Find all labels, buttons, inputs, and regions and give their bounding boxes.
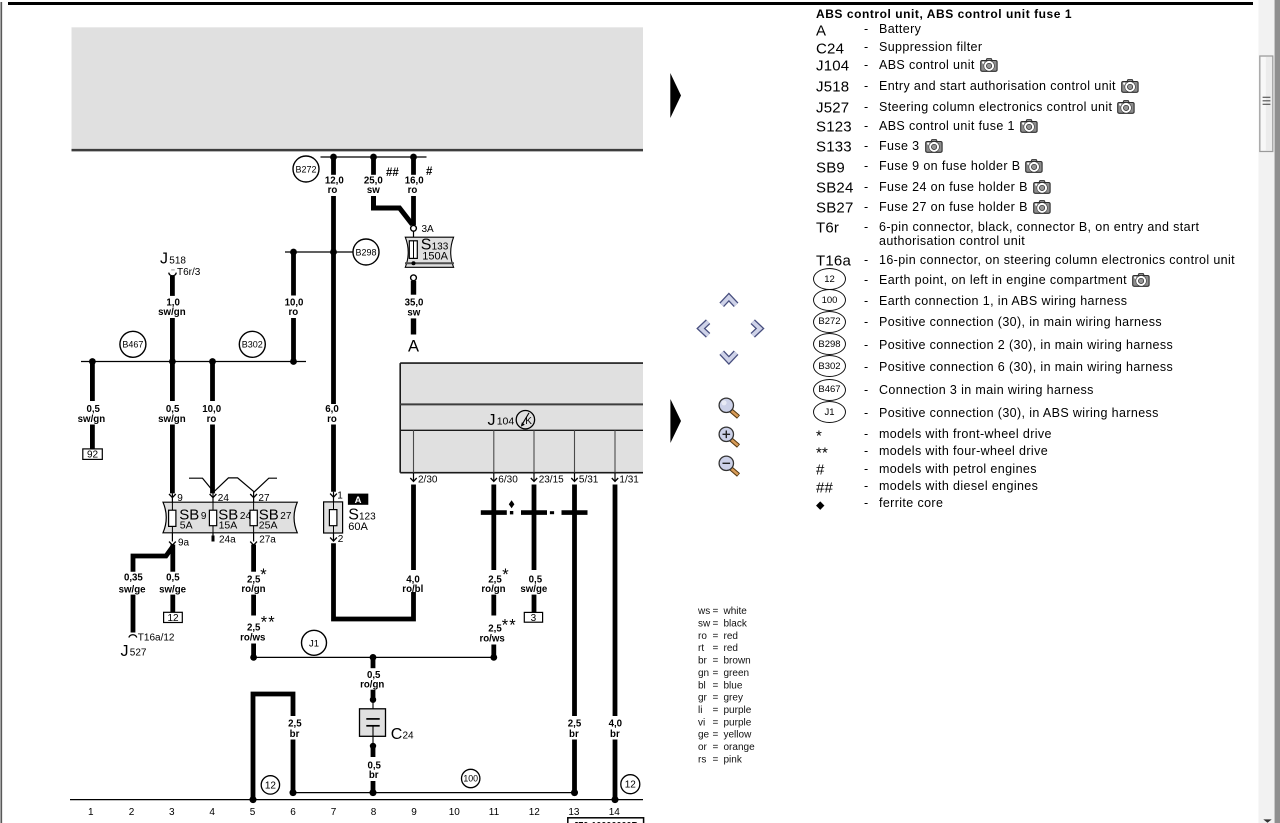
svg-text:sw/ge: sw/ge <box>119 585 147 596</box>
svg-text:T6r/3: T6r/3 <box>177 267 201 278</box>
svg-text:=: = <box>713 619 719 630</box>
svg-text:B302: B302 <box>242 340 263 350</box>
svg-text:8: 8 <box>371 807 377 818</box>
svg-text:=: = <box>713 606 719 617</box>
svg-text:14: 14 <box>609 807 621 818</box>
svg-text:sw: sw <box>407 308 420 319</box>
svg-text:B272: B272 <box>295 164 316 174</box>
svg-text:vi: vi <box>698 717 705 728</box>
svg-text:2,5: 2,5 <box>568 719 582 730</box>
svg-text:sw: sw <box>698 619 711 630</box>
svg-text:pink: pink <box>724 754 743 765</box>
svg-text:ro/ws: ro/ws <box>479 634 504 645</box>
svg-text:li: li <box>698 705 702 716</box>
svg-text:=: = <box>713 643 719 654</box>
svg-text:br: br <box>698 656 708 667</box>
svg-text:104: 104 <box>497 416 515 428</box>
svg-text:24a: 24a <box>219 535 236 546</box>
svg-text:5: 5 <box>250 807 256 818</box>
svg-text:=: = <box>713 680 719 691</box>
svg-text:25A: 25A <box>259 520 278 532</box>
svg-text:br: br <box>290 729 300 740</box>
svg-text:ro: ro <box>698 631 707 642</box>
svg-text:527: 527 <box>130 648 147 659</box>
svg-text:=: = <box>713 717 719 728</box>
svg-text:##: ## <box>386 167 399 179</box>
svg-text:purple: purple <box>724 705 752 716</box>
svg-text:=: = <box>713 705 719 716</box>
svg-text:br: br <box>369 770 379 781</box>
svg-text:92: 92 <box>87 450 99 461</box>
svg-text:4,0: 4,0 <box>609 719 622 730</box>
svg-text:J: J <box>488 412 496 429</box>
svg-text:10: 10 <box>449 807 461 818</box>
svg-text:518: 518 <box>169 255 186 266</box>
svg-text:grey: grey <box>724 693 743 704</box>
svg-text:sw/gn: sw/gn <box>158 307 186 318</box>
svg-text:#: # <box>426 166 433 178</box>
svg-text:ro: ro <box>328 185 338 196</box>
svg-text:2: 2 <box>338 534 344 545</box>
svg-text:1: 1 <box>337 491 343 502</box>
svg-text:11: 11 <box>489 807 500 818</box>
svg-text:ro/ws: ro/ws <box>240 632 265 643</box>
svg-text:ro: ro <box>408 185 418 196</box>
svg-text:sw/gn: sw/gn <box>158 414 186 425</box>
svg-text:C: C <box>391 726 403 743</box>
svg-text:12: 12 <box>167 613 179 624</box>
svg-text:A: A <box>355 495 362 506</box>
svg-text:ge: ge <box>698 730 710 741</box>
svg-text:purple: purple <box>724 717 752 728</box>
svg-text:5A: 5A <box>180 520 193 532</box>
svg-text:ro/gn: ro/gn <box>241 584 265 595</box>
svg-text:sw/ge: sw/ge <box>520 584 548 595</box>
svg-text:rs: rs <box>698 754 706 765</box>
svg-text:B298: B298 <box>355 247 376 257</box>
svg-text:ro/bl: ro/bl <box>402 584 423 595</box>
svg-text:rt: rt <box>698 643 704 654</box>
svg-text:15A: 15A <box>219 520 238 532</box>
svg-text:or: or <box>698 742 708 753</box>
svg-text:0,5: 0,5 <box>166 572 180 583</box>
svg-text:green: green <box>724 668 750 679</box>
svg-text:6/30: 6/30 <box>498 474 518 485</box>
svg-text:sw: sw <box>367 185 380 196</box>
svg-text:yellow: yellow <box>724 730 753 741</box>
svg-text:**: ** <box>261 614 276 632</box>
svg-text:=: = <box>713 631 719 642</box>
svg-text:9a: 9a <box>178 537 190 548</box>
svg-text:ro/gn: ro/gn <box>360 679 384 690</box>
svg-text:7: 7 <box>331 807 337 818</box>
svg-text:=: = <box>713 730 719 741</box>
svg-text:=: = <box>713 742 719 753</box>
svg-text:3A: 3A <box>422 224 435 235</box>
svg-text:27: 27 <box>280 511 292 522</box>
svg-text:black: black <box>724 619 748 630</box>
svg-text:23/15: 23/15 <box>539 474 564 485</box>
svg-text:6: 6 <box>290 807 296 818</box>
svg-text:100: 100 <box>463 774 478 784</box>
svg-text:brown: brown <box>724 656 751 667</box>
svg-text:=: = <box>713 754 719 765</box>
svg-text:3: 3 <box>169 807 175 818</box>
svg-text:sw/gn: sw/gn <box>78 414 106 425</box>
svg-text:24: 24 <box>403 730 415 741</box>
svg-text:12: 12 <box>265 780 277 791</box>
svg-text:12: 12 <box>529 807 541 818</box>
svg-text:27a: 27a <box>259 535 276 546</box>
svg-text:ws: ws <box>697 606 710 617</box>
svg-text:br: br <box>569 729 579 740</box>
svg-text:9: 9 <box>411 807 417 818</box>
svg-text:*: * <box>260 566 267 584</box>
svg-text:5/31: 5/31 <box>579 474 599 485</box>
svg-text:=: = <box>713 656 719 667</box>
svg-text:J: J <box>121 643 129 660</box>
svg-text:=: = <box>713 693 719 704</box>
svg-text:white: white <box>723 606 748 617</box>
svg-text:12: 12 <box>625 780 637 791</box>
svg-text:ro: ro <box>327 414 337 425</box>
svg-text:**: ** <box>502 617 517 635</box>
svg-text:1: 1 <box>88 807 94 818</box>
svg-text:*: * <box>502 566 509 584</box>
svg-text:0,35: 0,35 <box>124 572 143 583</box>
svg-text:4: 4 <box>209 807 215 818</box>
svg-text:sw/ge: sw/ge <box>159 585 187 596</box>
svg-text:1/31: 1/31 <box>619 474 639 485</box>
svg-text:ro: ro <box>207 414 217 425</box>
svg-text:=: = <box>713 668 719 679</box>
svg-text:2/30: 2/30 <box>418 474 438 485</box>
svg-text:blue: blue <box>724 680 743 691</box>
svg-text:B467: B467 <box>122 340 143 350</box>
svg-text:orange: orange <box>724 742 756 753</box>
svg-text:ro: ro <box>288 307 298 318</box>
svg-text:gr: gr <box>698 693 708 704</box>
svg-text:ro/gn: ro/gn <box>481 584 505 595</box>
svg-text:13: 13 <box>568 807 580 818</box>
svg-text:9: 9 <box>177 493 183 504</box>
svg-text:red: red <box>724 643 738 654</box>
svg-text:A: A <box>408 338 419 356</box>
svg-text:27: 27 <box>258 493 270 504</box>
svg-text:red: red <box>724 631 738 642</box>
svg-text:gn: gn <box>698 668 709 679</box>
svg-text:60A: 60A <box>348 521 368 533</box>
svg-text:bl: bl <box>698 680 706 691</box>
svg-text:9: 9 <box>201 511 207 522</box>
svg-text:J: J <box>160 251 168 268</box>
svg-text:2: 2 <box>129 807 135 818</box>
svg-text:J1: J1 <box>309 638 319 649</box>
svg-text:24: 24 <box>218 493 230 504</box>
svg-text:T16a/12: T16a/12 <box>138 633 175 644</box>
svg-text:150A: 150A <box>422 250 448 262</box>
svg-text:2,5: 2,5 <box>288 719 302 730</box>
svg-text:br: br <box>610 729 620 740</box>
svg-text:3: 3 <box>531 613 537 624</box>
